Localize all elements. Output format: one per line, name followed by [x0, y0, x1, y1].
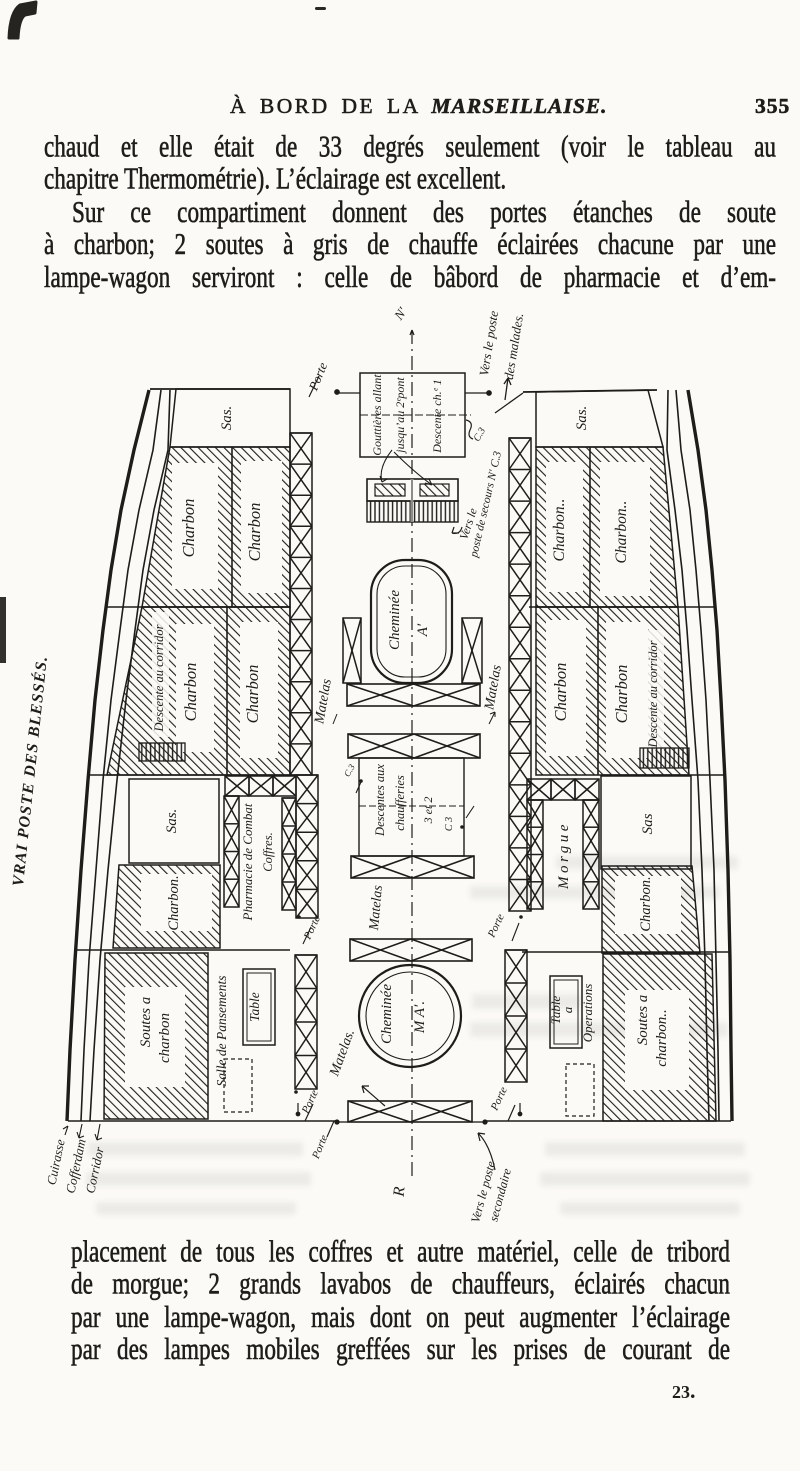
- svg-text:Porte: Porte: [305, 360, 330, 394]
- svg-text:Porte: Porte: [310, 1133, 331, 1161]
- svg-text:Porte: Porte: [488, 1085, 510, 1113]
- svg-text:Charbon: Charbon: [612, 665, 631, 724]
- svg-text:A′: A′: [415, 623, 431, 637]
- svg-text:Sas.: Sas.: [574, 406, 590, 431]
- svg-text:Sas.: Sas.: [164, 809, 180, 834]
- svg-text:Coffres.: Coffres.: [261, 832, 275, 871]
- svg-text:des malades.: des malades.: [501, 312, 526, 381]
- svg-text:C 3: C 3: [444, 817, 455, 831]
- svg-text:Charbon: Charbon: [551, 663, 570, 722]
- svg-text:a: a: [560, 1006, 575, 1013]
- svg-text:Descentes aux: Descentes aux: [373, 764, 387, 837]
- svg-text:Charbon.: Charbon.: [166, 875, 182, 930]
- svg-text:Porte: Porte: [485, 912, 507, 940]
- svg-text:poste de secours N′ C.3: poste de secours N′ C.3: [468, 450, 504, 559]
- svg-text:Charbon: Charbon: [179, 499, 198, 558]
- svg-text:Matelas: Matelas: [367, 884, 386, 932]
- svg-text:Charbon: Charbon: [243, 665, 262, 724]
- svg-text:Sas.: Sas.: [219, 406, 235, 431]
- svg-text:Descente au corridor: Descente au corridor: [646, 640, 660, 748]
- svg-text:Sas: Sas: [640, 813, 656, 834]
- svg-text:R: R: [391, 1186, 409, 1198]
- svg-text:charbon: charbon: [157, 1013, 173, 1063]
- svg-text:Salle de Pansements: Salle de Pansements: [214, 976, 229, 1087]
- svg-text:Operations: Operations: [580, 984, 595, 1043]
- svg-text:C.3: C.3: [472, 426, 489, 444]
- svg-text:Vers le poste: Vers le poste: [476, 309, 501, 376]
- svg-text:charbon..: charbon..: [654, 1009, 670, 1067]
- svg-text:chaufferies: chaufferies: [393, 775, 407, 831]
- svg-text:Table: Table: [247, 992, 262, 1022]
- svg-text:Charbon: Charbon: [245, 503, 264, 562]
- svg-text:Morgue: Morgue: [556, 821, 572, 890]
- svg-text:Descente ch.ᵉ 1: Descente ch.ᵉ 1: [430, 379, 444, 453]
- svg-text:N′: N′: [390, 304, 410, 323]
- svg-text:Descente au corridor: Descente au corridor: [152, 624, 166, 732]
- svg-text:Matelas.: Matelas.: [327, 1027, 358, 1079]
- svg-text:3 et 2: 3 et 2: [421, 797, 435, 825]
- svg-text:C.3: C.3: [342, 762, 357, 778]
- svg-text:Charbon: Charbon: [181, 663, 200, 722]
- svg-text:Pharmacie de Combat: Pharmacie de Combat: [240, 803, 255, 921]
- svg-text:Cuirasse: Cuirasse: [43, 1138, 67, 1187]
- svg-text:Charbon.: Charbon.: [638, 876, 654, 931]
- svg-text:Cheminée: Cheminée: [387, 590, 403, 650]
- svg-text:Porte: Porte: [299, 1088, 321, 1116]
- svg-text:Charbon..: Charbon..: [613, 501, 630, 564]
- svg-text:Matelas: Matelas: [482, 663, 505, 712]
- svg-text:Cheminée: Cheminée: [379, 984, 395, 1044]
- svg-text:Matelas: Matelas: [312, 677, 335, 726]
- svg-text:Gouttières allant: Gouttières allant: [370, 374, 384, 456]
- svg-text:jusqu’au 2ᵉpont: jusqu’au 2ᵉpont: [393, 377, 407, 455]
- svg-text:Soutes a: Soutes a: [635, 995, 651, 1045]
- svg-text:Soutes a: Soutes a: [138, 997, 154, 1047]
- svg-text:Charbon..: Charbon..: [551, 499, 568, 562]
- svg-text:M A′.: M A′.: [412, 1001, 428, 1034]
